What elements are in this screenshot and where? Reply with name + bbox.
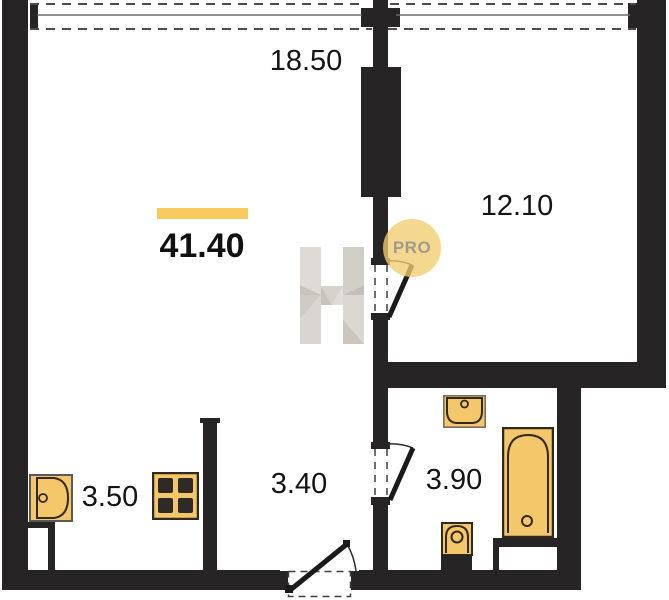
door2-frame-dashed: [375, 449, 387, 497]
door1-frame-dashed: [375, 265, 387, 313]
room-area-label-bedroom: 12.10: [481, 192, 554, 221]
room-area-label-bathroom: 3.90: [426, 466, 482, 495]
entrance-swing-arc: [347, 544, 356, 571]
door2-swing-arc: [388, 444, 413, 448]
entrance-leaf-tip: [343, 540, 350, 547]
room-area-label-hallway: 3.40: [271, 470, 327, 499]
door2-leaf: [390, 448, 413, 500]
pro-badge-text: PRO: [393, 238, 431, 258]
entrance-hinge: [285, 585, 293, 593]
pro-badge: PRO: [383, 219, 441, 277]
total-area-accent-bar: [157, 208, 248, 219]
room-area-label-living: 18.50: [270, 47, 343, 76]
room-area-label-kitchen: 3.50: [82, 483, 138, 512]
floor-plan: PRO 41.40 18.50 12.10 3.50 3.40 3.90: [0, 0, 669, 600]
total-area-label: 41.40: [159, 229, 244, 263]
